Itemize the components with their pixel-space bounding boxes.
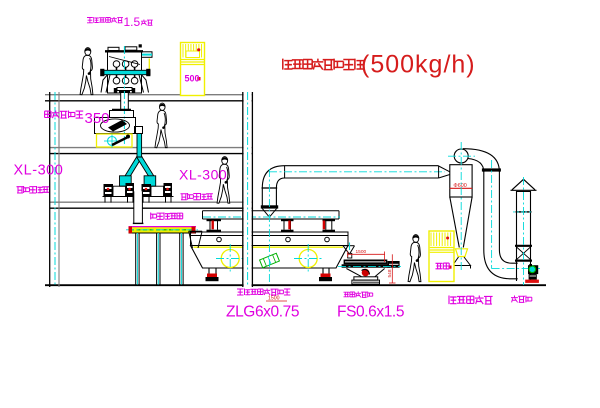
- svg-text:548: 548: [387, 269, 393, 277]
- svg-text:1500: 1500: [268, 296, 280, 302]
- svg-text:350: 350: [85, 110, 110, 127]
- svg-text:FS0.6x1.5: FS0.6x1.5: [337, 304, 404, 321]
- svg-text:(500kg/h): (500kg/h): [361, 51, 476, 79]
- svg-text:XL-300: XL-300: [14, 163, 64, 179]
- svg-text:Φ600: Φ600: [453, 183, 466, 189]
- svg-text:500: 500: [185, 74, 200, 84]
- svg-text:1500: 1500: [356, 249, 367, 255]
- svg-text:ZLG6x0.75: ZLG6x0.75: [226, 304, 299, 321]
- svg-text:1.5: 1.5: [124, 15, 141, 29]
- svg-text:XL-300: XL-300: [179, 167, 227, 183]
